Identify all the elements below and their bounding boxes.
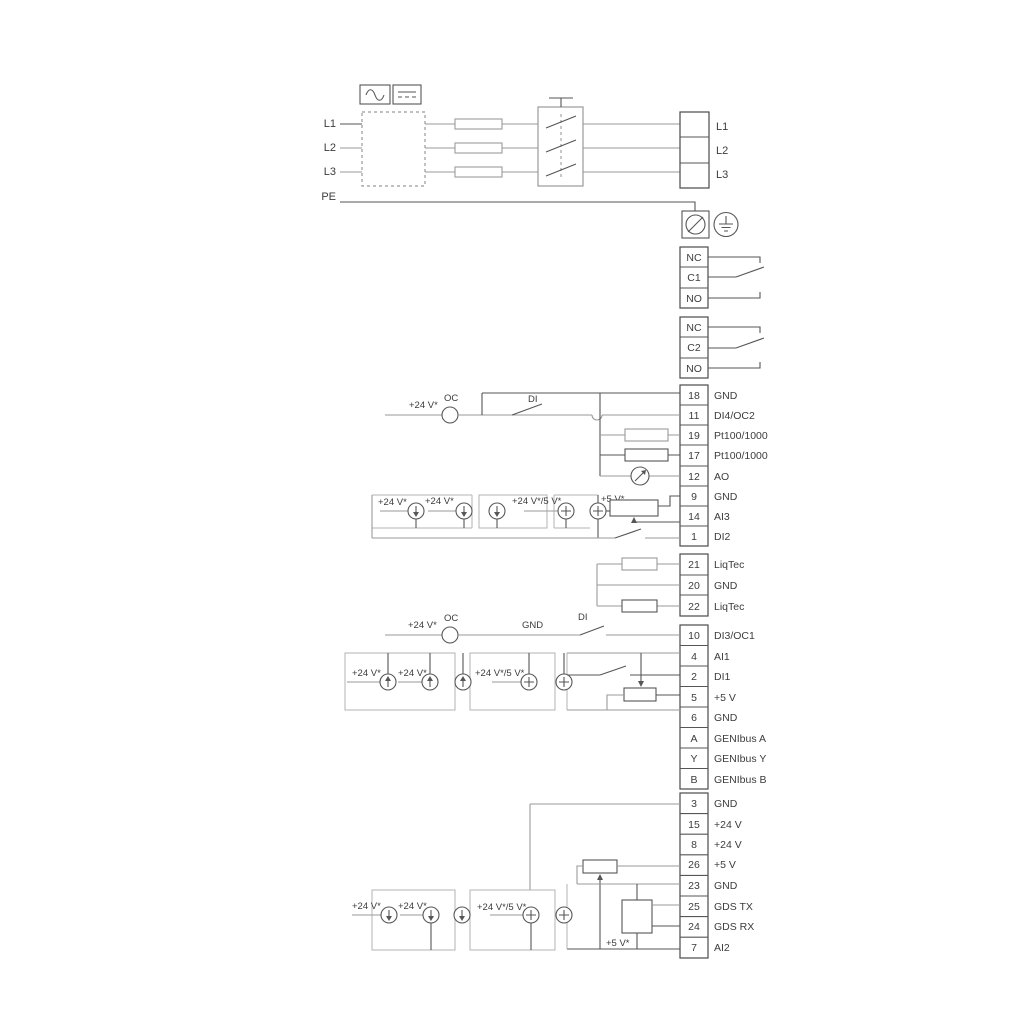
terminal-label: AI1: [714, 651, 730, 663]
terminal-label: +24 V: [714, 819, 742, 831]
terminal-number: 26: [688, 859, 700, 871]
resistor: [625, 429, 668, 441]
voltage-source-icon: [521, 674, 537, 690]
potentiometer: [606, 496, 680, 523]
terminal-label: AI3: [714, 511, 730, 523]
current-source-icon: [489, 503, 505, 519]
terminal-number: 25: [688, 901, 700, 913]
relay1-no: NO: [686, 293, 702, 305]
v24-label: +24 V*: [425, 496, 454, 507]
out-l3-label: L3: [716, 169, 728, 181]
terminal-number: 18: [688, 390, 700, 402]
terminal-label: LiqTec: [714, 601, 744, 613]
terminal-label: GENIbus Y: [714, 753, 766, 765]
terminal-label: LiqTec: [714, 559, 744, 571]
terminal-number: 8: [691, 839, 697, 851]
terminal-label: AI2: [714, 942, 730, 954]
v24-label: +24 V*: [378, 497, 407, 508]
terminal-label: DI2: [714, 531, 731, 543]
relay2-contact: [708, 327, 764, 368]
current-source-icon: [380, 674, 396, 690]
resistor: [625, 449, 668, 461]
di4-switch: [512, 404, 542, 415]
relay1-c1: C1: [687, 272, 701, 284]
terminal-number: 5: [691, 692, 697, 704]
out-l1-label: L1: [716, 121, 728, 133]
terminal-number: 24: [688, 921, 700, 933]
terminal-label: GND: [714, 880, 738, 892]
v24-5-label: +24 V*/5 V*: [512, 496, 562, 507]
mains-l3-label: L3: [324, 166, 336, 178]
ai3-di2-options: +24 V* +24 V* +24 V*/5 V* +5 V*: [372, 494, 680, 538]
current-source-icon: [381, 907, 397, 923]
v24-label: +24 V*: [352, 901, 381, 912]
dc-symbol-icon: [393, 85, 421, 104]
liqtec-section: 21 20 22 LiqTec GND LiqTec: [597, 554, 744, 616]
pe-ground: [340, 202, 738, 238]
oc-label: OC: [444, 613, 458, 624]
fuse-l1: [455, 119, 502, 129]
relay2-c2: C2: [687, 342, 701, 354]
v5-label: +5 V*: [606, 938, 630, 949]
terminal-label: GENIbus B: [714, 774, 767, 786]
di2-switch: [615, 529, 641, 538]
v24-5-label: +24 V*/5 V*: [477, 902, 527, 913]
voltage-source-icon: [556, 674, 572, 690]
terminal-number: 15: [688, 819, 700, 831]
relay2-nc: NC: [686, 322, 702, 334]
ai2-options: +24 V* +24 V* +24 V*/5 V*: [352, 884, 572, 950]
wiring-diagram-page: L1 L2 L3 PE: [0, 0, 1024, 1024]
terminal-label: Pt100/1000: [714, 430, 768, 442]
v24-label: +24 V*: [398, 901, 427, 912]
terminal-label: GND: [714, 580, 738, 592]
terminal-label: DI3/OC1: [714, 630, 755, 642]
di4-oc2-wiring: +24 V* OC DI: [385, 393, 680, 423]
relay1-contact: [708, 257, 764, 298]
fuse-l3: [455, 167, 502, 177]
potentiometer: [607, 653, 680, 710]
terminal-number: 19: [688, 430, 700, 442]
di-label: DI: [528, 394, 538, 405]
mains-output-block: L1 L2 L3: [680, 112, 728, 188]
terminal-label: DI4/OC2: [714, 410, 755, 422]
di3-switch: [580, 626, 604, 635]
wiring-diagram: L1 L2 L3 PE: [0, 0, 1024, 1024]
relay2-section: NC C2 NO: [680, 317, 764, 378]
out-l2-label: L2: [716, 145, 728, 157]
ai1-di1-options: +24 V* +24 V* +24 V*/5 V*: [345, 653, 680, 710]
terminal-number: 12: [688, 471, 700, 483]
voltage-source-icon: [523, 907, 539, 923]
terminal-number: 10: [688, 630, 700, 642]
terminal-label: AO: [714, 471, 729, 483]
v24-label: +24 V*: [408, 620, 437, 631]
terminal-number: 9: [691, 491, 697, 503]
gnd-label: GND: [522, 620, 543, 631]
terminal-label: GND: [714, 491, 738, 503]
liqtec-wiring: [597, 558, 680, 612]
current-source-icon: [408, 503, 424, 519]
v24-label: +24 V*: [398, 668, 427, 679]
io-block3-section: 3 15 8 26 23 25 24 7 GND +24 V +24 V +5 …: [352, 793, 754, 958]
di-label: DI: [578, 612, 588, 623]
open-collector-icon: [442, 627, 458, 643]
terminal-label: GDS TX: [714, 901, 753, 913]
terminal-number: 20: [688, 580, 700, 592]
fuse-l2: [455, 143, 502, 153]
ac-symbol-icon: [360, 85, 390, 104]
terminal-number: 22: [688, 601, 700, 613]
resistor: [622, 558, 657, 570]
terminal-number: 11: [689, 410, 700, 422]
current-source-icon: [455, 674, 471, 690]
terminal-label: DI1: [714, 671, 731, 683]
mains-l2-label: L2: [324, 142, 336, 154]
terminal-number: Y: [690, 753, 697, 765]
terminal-number: 14: [688, 511, 700, 523]
gnd-feed-wiring: [530, 804, 680, 890]
voltage-source-icon: [558, 503, 574, 519]
gds-sensor: +5 V*: [606, 884, 680, 949]
mains-section: L1 L2 L3 PE: [321, 85, 738, 238]
current-source-icon: [456, 503, 472, 519]
voltage-source-icon: [590, 503, 606, 519]
pe-label: PE: [321, 191, 336, 203]
relay2-no: NO: [686, 363, 702, 375]
current-source-icon: [423, 907, 439, 923]
pt100-ao-wiring: [600, 393, 680, 485]
terminal-number: 1: [691, 531, 697, 543]
terminal-number: 4: [691, 651, 697, 663]
resistor: [622, 600, 657, 612]
analog-output-meter-icon: [631, 467, 649, 485]
io-block2-section: 10 4 2 5 6 A Y B DI3/OC1 AI1 DI1 +5 V GN…: [345, 612, 767, 789]
earth-ground-icon: [714, 213, 738, 237]
current-source-icon: [454, 907, 470, 923]
terminal-number: 7: [691, 942, 697, 954]
terminal-number: 2: [691, 671, 697, 683]
rfi-filter-box: [362, 112, 425, 186]
v24-5-label: +24 V*/5 V*: [475, 668, 525, 679]
terminal-number: 3: [691, 798, 697, 810]
terminal-number: B: [690, 774, 697, 786]
di3-oc1-wiring: +24 V* OC GND DI: [385, 612, 680, 643]
gds-sensor-box: [622, 900, 652, 933]
terminal-number: 17: [688, 450, 700, 462]
v24-label: +24 V*: [352, 668, 381, 679]
terminal-label: GND: [714, 712, 738, 724]
terminal-label: +24 V: [714, 839, 742, 851]
relay1-section: NC C1 NO: [680, 247, 764, 308]
oc-label: OC: [444, 393, 458, 404]
terminal-label: GENIbus A: [714, 733, 766, 745]
voltage-source-icon: [556, 907, 572, 923]
terminal-number: 23: [688, 880, 700, 892]
ground-terminal-icon: [682, 211, 709, 238]
v24-label: +24 V*: [409, 400, 438, 411]
terminal-number: A: [690, 733, 697, 745]
terminal-label: +5 V: [714, 692, 736, 704]
terminal-label: GND: [714, 390, 738, 402]
open-collector-icon: [442, 407, 458, 423]
main-switch: [538, 98, 583, 186]
mains-l1-label: L1: [324, 118, 336, 130]
terminal-label: GND: [714, 798, 738, 810]
io-block1-section: 18 11 19 17 12 9 14 1 GND DI4/OC2 Pt100/…: [372, 385, 768, 546]
current-source-icon: [422, 674, 438, 690]
terminal-number: 6: [691, 712, 697, 724]
relay1-nc: NC: [686, 252, 702, 264]
di1-switch: [600, 666, 626, 675]
terminal-number: 21: [688, 559, 700, 571]
terminal-label: Pt100/1000: [714, 450, 768, 462]
terminal-label: +5 V: [714, 859, 736, 871]
terminal-label: GDS RX: [714, 921, 754, 933]
